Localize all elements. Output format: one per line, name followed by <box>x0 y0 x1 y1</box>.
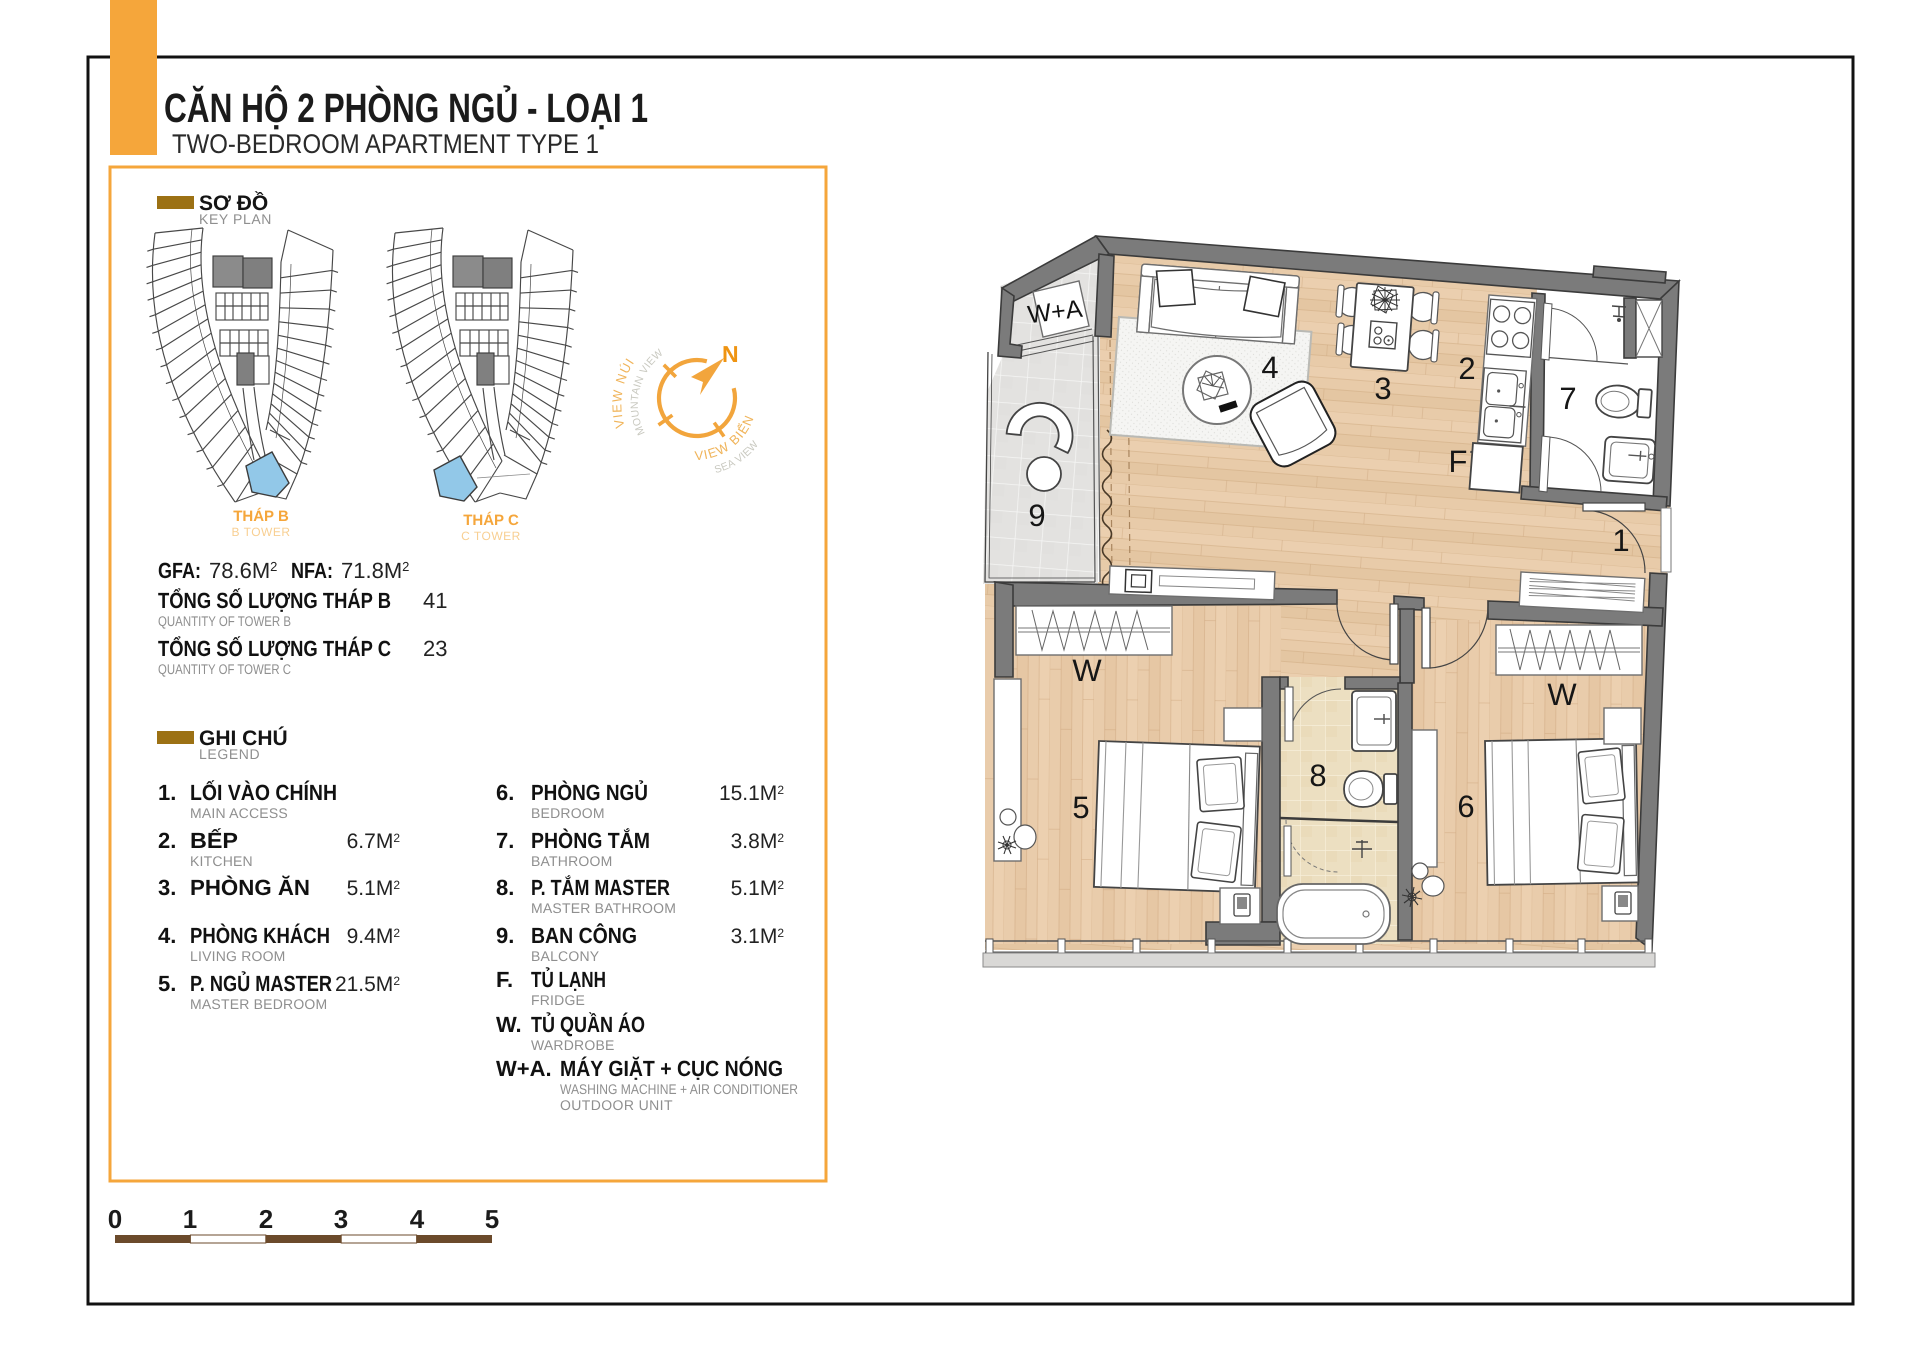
svg-text:QUANTITY OF TOWER C: QUANTITY OF TOWER C <box>158 661 291 677</box>
svg-text:W: W <box>1547 677 1577 712</box>
svg-text:MAIN ACCESS: MAIN ACCESS <box>190 805 288 821</box>
svg-text:B TOWER: B TOWER <box>231 525 290 539</box>
svg-text:PHÒNG TẮM: PHÒNG TẮM <box>531 828 650 853</box>
svg-text:23: 23 <box>423 636 447 661</box>
svg-text:71.8M2: 71.8M2 <box>341 558 409 583</box>
svg-text:NFA:: NFA: <box>291 558 333 583</box>
svg-text:3.8M2: 3.8M2 <box>731 830 785 853</box>
svg-text:9.: 9. <box>496 923 514 948</box>
svg-text:GFA:: GFA: <box>158 558 201 583</box>
svg-text:P. NGỦ MASTER: P. NGỦ MASTER <box>190 971 332 996</box>
svg-text:MASTER BATHROOM: MASTER BATHROOM <box>531 900 676 916</box>
svg-text:N: N <box>722 341 739 367</box>
svg-text:1.: 1. <box>158 780 176 805</box>
svg-text:FRIDGE: FRIDGE <box>531 992 585 1008</box>
svg-text:W.: W. <box>496 1012 522 1037</box>
svg-text:5.1M2: 5.1M2 <box>347 877 401 900</box>
svg-text:5.: 5. <box>158 971 176 996</box>
svg-text:PHÒNG KHÁCH: PHÒNG KHÁCH <box>190 923 330 948</box>
svg-text:78.6M2: 78.6M2 <box>209 558 277 583</box>
svg-text:15.1M2: 15.1M2 <box>719 782 784 805</box>
svg-text:1: 1 <box>183 1204 197 1234</box>
svg-text:LEGEND: LEGEND <box>199 746 260 762</box>
svg-text:6.7M2: 6.7M2 <box>347 830 401 853</box>
svg-text:CĂN HỘ 2 PHÒNG NGỦ - LOẠI 1: CĂN HỘ 2 PHÒNG NGỦ - LOẠI 1 <box>164 85 648 131</box>
svg-text:KEY PLAN: KEY PLAN <box>199 211 272 227</box>
svg-text:21.5M2: 21.5M2 <box>335 973 400 996</box>
svg-text:P. TẮM MASTER: P. TẮM MASTER <box>531 875 670 900</box>
svg-text:MASTER BEDROOM: MASTER BEDROOM <box>190 996 327 1012</box>
svg-text:W+A.: W+A. <box>496 1056 552 1081</box>
svg-text:6.: 6. <box>496 780 514 805</box>
svg-text:WASHING MACHINE + AIR CONDITIO: WASHING MACHINE + AIR CONDITIONER <box>560 1081 798 1097</box>
svg-text:0: 0 <box>108 1204 122 1234</box>
svg-text:LỐI VÀO CHÍNH: LỐI VÀO CHÍNH <box>190 780 337 805</box>
svg-text:4: 4 <box>410 1204 425 1234</box>
svg-text:BẾP: BẾP <box>190 828 238 853</box>
svg-text:4: 4 <box>1261 350 1278 385</box>
svg-text:2: 2 <box>1458 351 1475 386</box>
svg-text:TỦ QUẦN ÁO: TỦ QUẦN ÁO <box>531 1012 645 1037</box>
svg-text:1: 1 <box>1612 523 1629 558</box>
svg-text:3.1M2: 3.1M2 <box>731 925 785 948</box>
svg-text:TỦ LẠNH: TỦ LẠNH <box>531 967 606 992</box>
svg-text:2.: 2. <box>158 828 176 853</box>
svg-text:9: 9 <box>1028 498 1045 533</box>
svg-text:5.1M2: 5.1M2 <box>731 877 785 900</box>
svg-text:PHÒNG NGỦ: PHÒNG NGỦ <box>531 780 648 805</box>
svg-text:WARDROBE: WARDROBE <box>531 1037 615 1053</box>
svg-text:BEDROOM: BEDROOM <box>531 805 605 821</box>
svg-text:4.: 4. <box>158 923 176 948</box>
svg-text:LIVING ROOM: LIVING ROOM <box>190 948 286 964</box>
svg-text:QUANTITY OF TOWER B: QUANTITY OF TOWER B <box>158 613 291 629</box>
svg-text:C TOWER: C TOWER <box>461 529 521 543</box>
svg-text:TWO-BEDROOM APARTMENT TYPE 1: TWO-BEDROOM APARTMENT TYPE 1 <box>172 129 599 159</box>
svg-text:BALCONY: BALCONY <box>531 948 600 964</box>
svg-text:TỔNG SỐ LƯỢNG THÁP C: TỔNG SỐ LƯỢNG THÁP C <box>158 636 391 661</box>
svg-text:5: 5 <box>485 1204 499 1234</box>
svg-text:TỔNG SỐ LƯỢNG THÁP B: TỔNG SỐ LƯỢNG THÁP B <box>158 588 391 613</box>
svg-text:6: 6 <box>1457 789 1474 824</box>
svg-text:2: 2 <box>259 1204 273 1234</box>
svg-text:7: 7 <box>1559 381 1576 416</box>
svg-text:BATHROOM: BATHROOM <box>531 853 612 869</box>
svg-text:THÁP C: THÁP C <box>463 511 519 529</box>
svg-text:5: 5 <box>1072 790 1089 825</box>
svg-text:BAN CÔNG: BAN CÔNG <box>531 923 637 948</box>
svg-text:7.: 7. <box>496 828 514 853</box>
svg-text:8: 8 <box>1309 758 1326 793</box>
svg-text:OUTDOOR UNIT: OUTDOOR UNIT <box>560 1097 673 1113</box>
svg-text:THÁP B: THÁP B <box>233 507 289 525</box>
svg-text:3: 3 <box>334 1204 348 1234</box>
svg-text:3: 3 <box>1374 371 1391 406</box>
svg-text:3.: 3. <box>158 875 176 900</box>
svg-text:8.: 8. <box>496 875 514 900</box>
svg-text:PHÒNG ĂN: PHÒNG ĂN <box>190 875 310 900</box>
svg-text:F.: F. <box>496 967 513 992</box>
svg-text:KITCHEN: KITCHEN <box>190 853 253 869</box>
svg-text:MÁY GIẶT + CỤC NÓNG: MÁY GIẶT + CỤC NÓNG <box>560 1056 783 1081</box>
svg-text:9.4M2: 9.4M2 <box>347 925 401 948</box>
svg-text:W: W <box>1072 653 1102 688</box>
svg-text:F: F <box>1449 444 1468 479</box>
svg-text:41: 41 <box>423 588 447 613</box>
